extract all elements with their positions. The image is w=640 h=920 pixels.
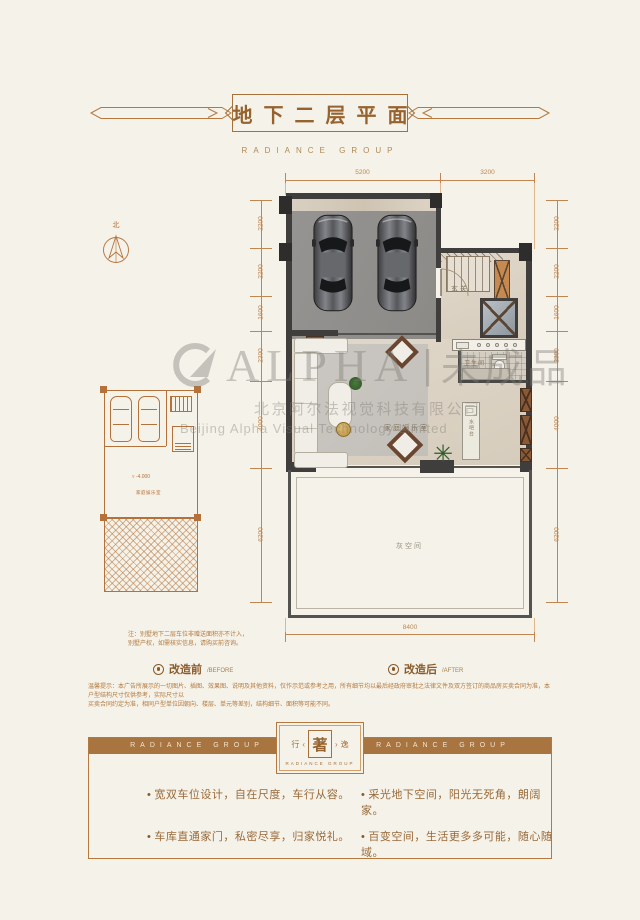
plan-note: 注：别墅地下二层车位非赠送面积亦不计入， 别墅产权，如需核实信息，请购买前咨询。 [128,631,278,648]
footer-brand-left: RADIANCE GROUP [107,742,287,749]
shower-tub [462,368,510,380]
selling-point-3: •采光地下空间，阳光无死角，朗阔家。 [361,786,557,818]
car-right [376,213,418,313]
badge-sub-brand: RADIANCE GROUP [285,761,354,766]
dim-right-column: 2200 2200 1600 2300 4000 6200 [546,200,568,603]
dim-bottom: 8400 [285,630,535,648]
dim-bottom-value: 8400 [285,624,535,631]
car-left [312,213,354,313]
legend-after-icon [388,664,399,675]
grayspace-wall-bottom [288,615,532,618]
before-car-left [110,396,132,442]
footer-brand-right: RADIANCE GROUP [353,742,533,749]
bathroom-label: 卫生间 [464,358,485,367]
entry-closet [494,260,510,302]
family-room-label: 家庭娱乐室 [384,423,429,433]
before-level-mark: ▿ -4.000 [132,474,150,480]
legend-before: 改造前 /BEFORE [153,661,233,677]
grayspace-label: 灰空间 [396,541,423,551]
dim-left-column: 2200 2200 1600 2300 4000 6200 [250,200,272,603]
sofa-bottom [294,452,348,468]
selling-points: •宽双车位设计，自在尺度，车行从容。 •采光地下空间，阳光无死角，朗阔家。 •车… [147,786,557,860]
before-elevator [172,426,194,452]
badge-center-char: 著 [308,730,332,758]
selling-point-1: •宽双车位设计，自在尺度，车行从容。 [147,786,361,818]
selling-point-2: •车库直通家门，私密尽享，归家悦礼。 [147,828,361,860]
selling-point-4: •百变空间，生活更多多可能，随心随域。 [361,828,557,860]
grayspace-wall-right [529,470,532,618]
legend-before-icon [153,664,164,675]
bar-sink [456,342,469,349]
floor-plant: ✳ [430,442,456,468]
before-car-right [138,396,160,442]
before-terrace-hatch [104,518,198,592]
badge-left-char: 行 [291,739,299,750]
water-bar-label: 水吧台 [468,419,475,437]
dim-top-1: 5200 [285,169,440,176]
disclaimer: 温馨提示：本广告所展示的一切图片、插图、效果图、说明及其他资料，仅作示范或参考之… [88,683,554,710]
badge-right-char: 逸 [341,739,349,750]
round-side-table [336,422,351,437]
table-plant [349,377,362,390]
entry-label: 玄关 [451,284,469,294]
elevator [480,298,518,338]
footer-badge: 行 ‹ 著 › 逸 RADIANCE GROUP [276,722,364,774]
coffee-table [328,382,352,428]
before-stairs [170,396,192,412]
floor-plan-before: ▿ -4.000 家庭娱乐室 [96,382,206,596]
legend-after: 改造后 /AFTER [388,661,463,677]
dim-top-2: 3200 [440,169,535,176]
footer-panel: RADIANCE GROUP RADIANCE GROUP 行 ‹ 著 › 逸 … [88,737,552,859]
dim-top: 5200 3200 [285,168,535,184]
bar-counter [452,339,526,351]
wall-top-garage [286,193,442,199]
grayspace-wall-left [288,470,291,618]
garage-entry-strip [292,199,436,211]
sofa-left [294,352,318,454]
before-room-label: 家庭娱乐室 [136,490,161,496]
water-bar-cabinet: 水吧台 [462,402,480,460]
